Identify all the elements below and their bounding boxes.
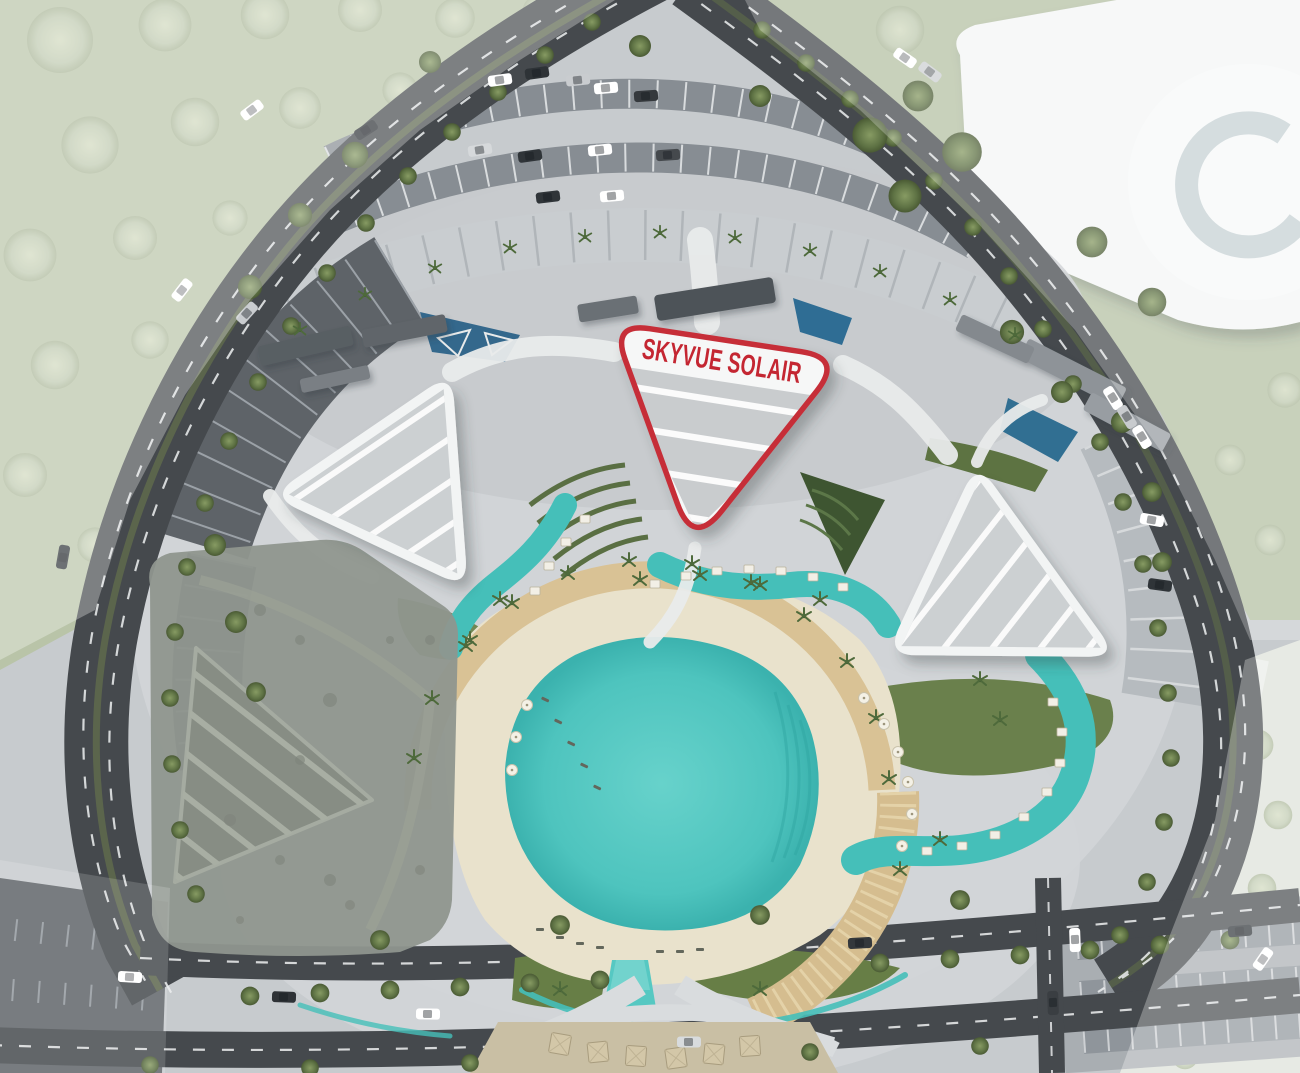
site-plan-image: SKYVUE SOLAIR: [0, 0, 1300, 1073]
central-lagoon: [505, 637, 819, 930]
south-beach-club: [470, 1022, 838, 1073]
master-plan-rendering: SKYVUE SOLAIR: [0, 0, 1300, 1073]
